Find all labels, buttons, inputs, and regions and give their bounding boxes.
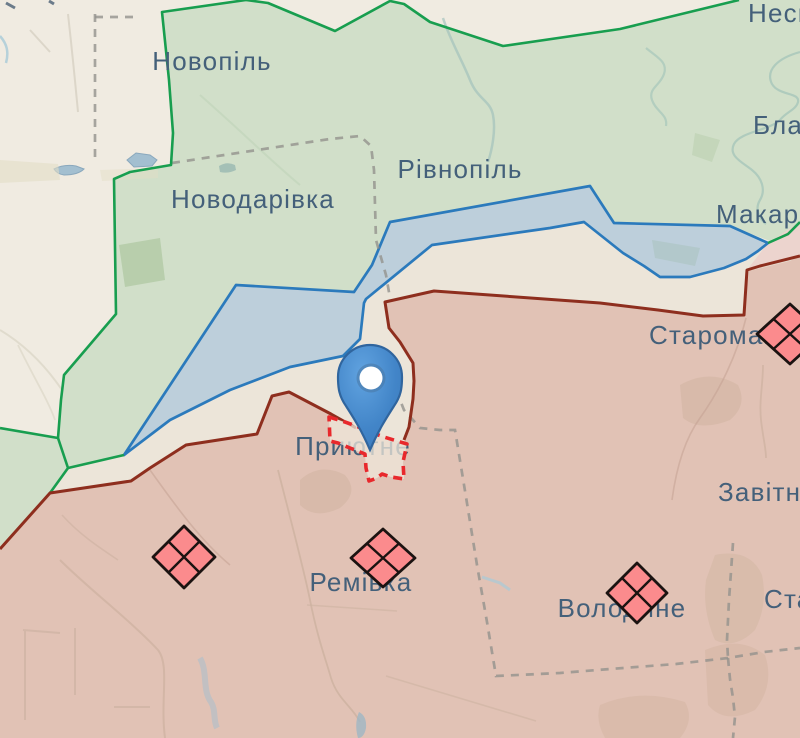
svg-text:Нескучне: Нескучне xyxy=(748,0,800,28)
svg-text:Рівнопіль: Рівнопіль xyxy=(397,154,522,184)
svg-text:Благодатне: Благодатне xyxy=(753,110,800,140)
svg-text:Новодарівка: Новодарівка xyxy=(171,184,335,214)
svg-text:Завітне: Завітне xyxy=(718,477,800,507)
svg-text:Стародубове: Стародубове xyxy=(764,584,800,614)
svg-text:Новопіль: Новопіль xyxy=(152,46,271,76)
svg-text:Макарівка: Макарівка xyxy=(716,199,800,229)
